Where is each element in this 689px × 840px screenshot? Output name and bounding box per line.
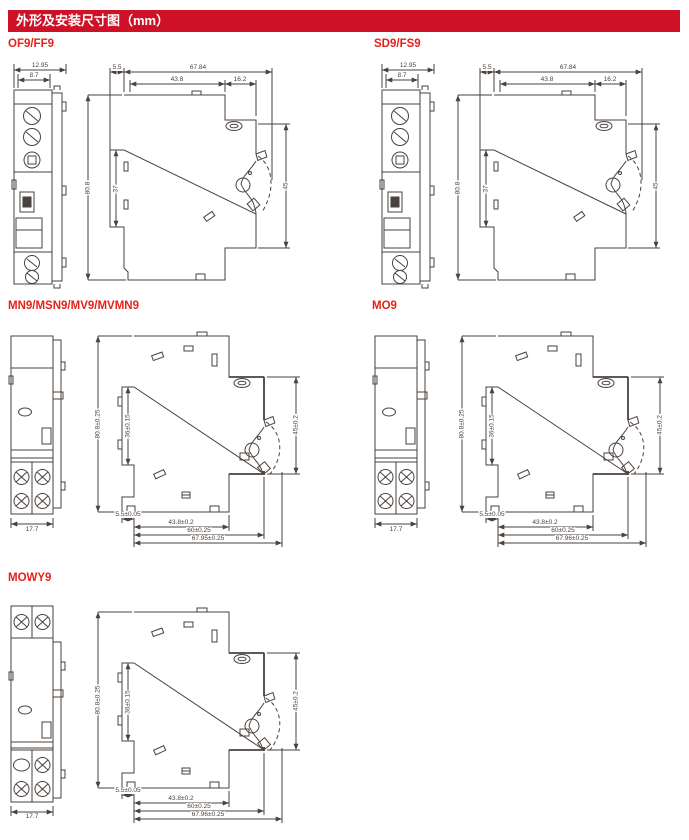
side-view-svg	[8, 332, 68, 537]
dim-label-clip-width: 16.2	[603, 76, 618, 83]
side-view-svg	[378, 62, 440, 290]
dim-label-overall-width: 12.95	[399, 62, 417, 69]
side-view-drawing: 12.95 8.7	[378, 62, 440, 290]
side-view-drawing: 17.7	[8, 332, 68, 537]
section-sd9-fs9: SD9/FS9 12.95 8.7 5.5 67.84 43.8 16.2 80…	[374, 38, 689, 294]
dim-label-body-width: 43.8±0.2	[167, 795, 194, 802]
dim-label-overall-width: 12.95	[31, 62, 49, 69]
main-view-svg	[80, 62, 312, 290]
dim-label-total-width: 67.84	[189, 64, 207, 71]
dim-label-inner-width: 8.7	[396, 72, 407, 79]
side-view-svg	[8, 602, 68, 824]
section-title: SD9/FS9	[374, 38, 421, 50]
section-title: MN9/MSN9/MV9/MVMN9	[8, 300, 139, 312]
main-view-drawing: 80.8±0.25 36±0.15 45±0.2 5.5±0.05 43.8±0…	[92, 598, 324, 830]
dim-label-total-width: 67.96±0.25	[555, 535, 589, 542]
dim-label-bottom-width: 17.7	[25, 526, 40, 533]
main-view-drawing: 5.5 67.84 43.8 16.2 80.8 37 45	[450, 62, 682, 290]
dim-label-rail-height: 45±0.2	[656, 414, 663, 436]
dim-label-rail-height: 45±0.2	[292, 414, 299, 436]
section-mo9: MO9 17.7 80.8±0.25 36±0.15 45±0.2 5.5±0.…	[372, 300, 689, 562]
side-view-drawing: 17.7	[372, 332, 432, 537]
dim-label-bottom-width: 17.7	[25, 813, 40, 820]
side-view-svg	[372, 332, 432, 537]
dim-label-rail-height: 45	[652, 181, 659, 190]
section-title: MOWY9	[8, 572, 51, 584]
main-view-drawing: 80.8±0.25 36±0.15 45±0.2 5.5±0.05 43.8±0…	[456, 322, 688, 554]
side-view-svg	[10, 62, 72, 290]
dim-label-bottom-width: 17.7	[389, 526, 404, 533]
dim-label-rail-height: 45±0.2	[292, 690, 299, 712]
side-view-drawing: 17.7	[8, 602, 68, 824]
page-title: 外形及安装尺寸图（mm）	[8, 10, 680, 32]
section-of9-ff9: OF9/FF9 12.95 8.7 5.5 67.84 43.8 16.2 80…	[8, 38, 338, 294]
dim-label-inner-width: 8.7	[28, 72, 39, 79]
dim-label-mid-width: 60±0.25	[186, 527, 211, 534]
dim-label-body-width: 43.8	[170, 76, 185, 83]
dim-label-panel-height: 37	[112, 184, 119, 193]
page: 外形及安装尺寸图（mm） OF9/FF9 12.95 8.7 5.5 67.84…	[0, 0, 689, 840]
dim-label-panel-height: 36±0.15	[124, 413, 131, 438]
dim-label-body-width: 43.8±0.2	[167, 519, 194, 526]
dim-label-panel-height: 36±0.15	[124, 689, 131, 714]
dim-label-front-offset: 5.5±0.05	[478, 511, 505, 518]
dim-label-front-offset: 5.5±0.05	[114, 787, 141, 794]
dim-label-body-width: 43.8±0.2	[531, 519, 558, 526]
dim-label-front-offset: 5.5	[111, 64, 122, 71]
dim-label-height: 80.8±0.25	[458, 409, 465, 440]
dim-label-height: 80.8	[84, 181, 91, 196]
main-view-drawing: 80.8±0.25 36±0.15 45±0.2 5.5±0.05 43.8±0…	[92, 322, 324, 554]
dim-label-total-width: 67.84	[559, 64, 577, 71]
dim-label-body-width: 43.8	[540, 76, 555, 83]
dim-label-height: 80.8	[454, 181, 461, 196]
section-title: OF9/FF9	[8, 38, 54, 50]
section-mowy9: MOWY9 17.7 80.8±0.25 36±0.15 45±0.2 5.5±…	[8, 572, 338, 836]
main-view-svg	[450, 62, 682, 290]
dim-label-panel-height: 37	[482, 184, 489, 193]
section-mn9: MN9/MSN9/MV9/MVMN9 17.7 80.8±0.25 36±0.1…	[8, 300, 338, 562]
dim-label-panel-height: 36±0.15	[488, 413, 495, 438]
dim-label-mid-width: 60±0.25	[186, 803, 211, 810]
main-view-drawing: 5.5 67.84 43.8 16.2 80.8 37 45	[80, 62, 312, 290]
dim-label-front-offset: 5.5	[481, 64, 492, 71]
dim-label-mid-width: 60±0.25	[550, 527, 575, 534]
side-view-drawing: 12.95 8.7	[10, 62, 72, 290]
dim-label-height: 80.8±0.25	[94, 409, 101, 440]
section-title: MO9	[372, 300, 397, 312]
dim-label-height: 80.8±0.25	[94, 685, 101, 716]
dim-label-rail-height: 45	[282, 181, 289, 190]
dim-label-total-width: 67.96±0.25	[191, 811, 225, 818]
dim-label-front-offset: 5.5±0.05	[114, 511, 141, 518]
dim-label-total-width: 67.95±0.25	[191, 535, 225, 542]
dim-label-clip-width: 16.2	[233, 76, 248, 83]
